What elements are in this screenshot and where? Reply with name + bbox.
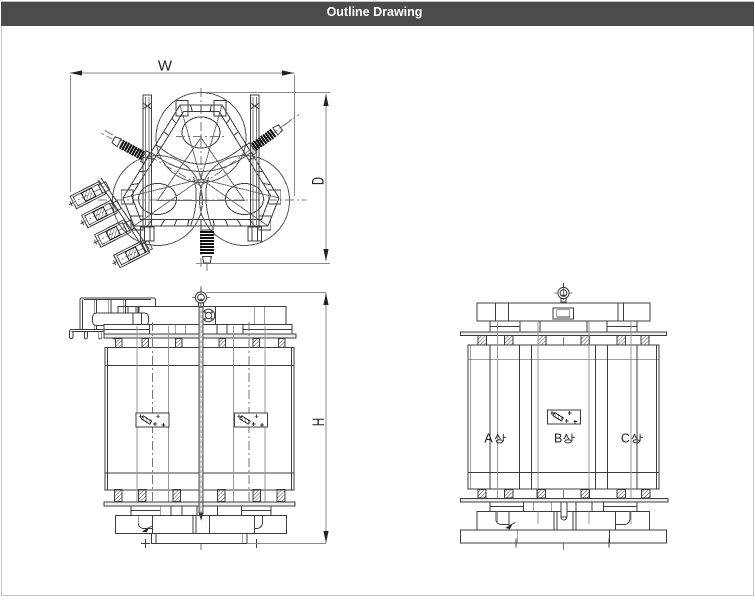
svg-text:A: A: [484, 431, 493, 445]
svg-text:W: W: [158, 58, 173, 75]
svg-text:C: C: [621, 431, 630, 445]
svg-text:B: B: [554, 431, 562, 445]
svg-text:D: D: [309, 177, 328, 185]
svg-text:H: H: [309, 418, 328, 427]
